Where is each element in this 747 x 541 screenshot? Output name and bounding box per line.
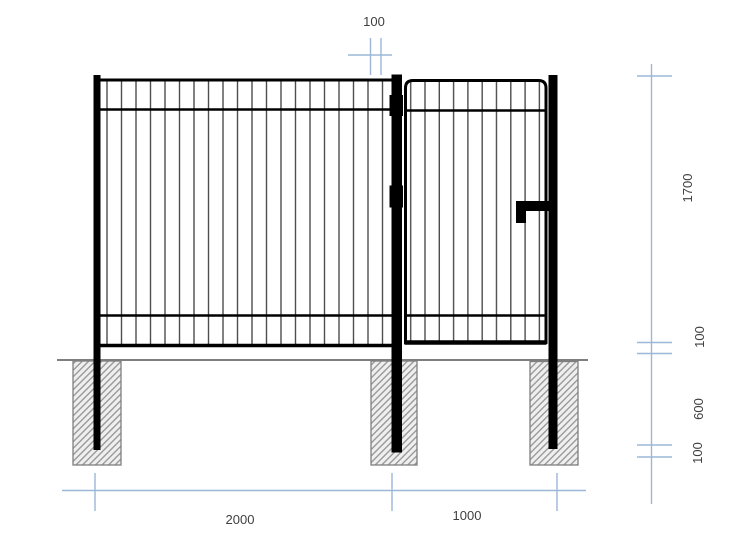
dimension-bottom-chain: 2000 1000	[62, 473, 586, 527]
post-middle	[392, 75, 403, 453]
fence-gate-elevation-drawing: 100 1700 100 600 100 2000 1000	[0, 0, 747, 541]
post-left	[94, 75, 101, 450]
dimension-value-1000: 1000	[453, 508, 482, 523]
dimension-value-2000: 2000	[226, 512, 255, 527]
dimension-right-chain: 1700 100 600 100	[637, 64, 707, 504]
dimension-top-gap: 100	[348, 14, 392, 75]
dimension-value-100-lower: 100	[690, 442, 705, 464]
fence-pickets	[100, 82, 392, 348]
gate-leaf	[390, 81, 557, 345]
dimension-value-top: 100	[363, 14, 385, 29]
technical-drawing-svg: 100 1700 100 600 100 2000 1000	[0, 0, 747, 541]
dimension-value-600: 600	[691, 398, 706, 420]
foundation-footings	[73, 361, 578, 465]
dimension-value-1700: 1700	[680, 174, 695, 203]
fence-panel	[100, 80, 392, 347]
post-right	[549, 75, 558, 449]
dimension-value-100-upper: 100	[692, 326, 707, 348]
